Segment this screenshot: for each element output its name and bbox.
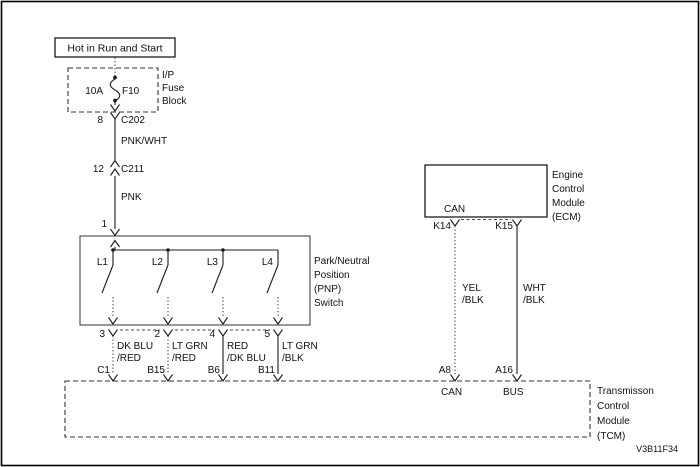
tcm-pin-b6-label: B6 xyxy=(208,365,221,376)
switch-L3: L3 xyxy=(207,250,228,324)
diagram-code: V3B11F34 xyxy=(636,444,678,454)
ecm-pin-k15-label: K15 xyxy=(495,221,513,232)
power-feed: Hot in Run and Start 10A F10 I/P Fuse Bl… xyxy=(55,38,187,236)
pnp-label-2: Position xyxy=(314,270,350,281)
tcm-label-3: Module xyxy=(597,416,630,427)
fuse-top-junction xyxy=(113,76,117,80)
tcm: CAN BUS Transmisson Control Module (TCM) xyxy=(65,381,654,442)
down-arrow-icon xyxy=(164,318,173,325)
connector-c202-icon xyxy=(111,113,120,120)
wire-1-color-2: /RED xyxy=(117,353,141,364)
tcm-pin-a16-label: A16 xyxy=(495,365,513,376)
wire-3-color-1: RED xyxy=(227,341,248,352)
pnp-out-pin-3-label: 3 xyxy=(99,329,105,340)
wire-yel-blk-color-2: /BLK xyxy=(462,295,484,306)
down-arrow-icon xyxy=(111,105,120,112)
down-arrow-icon xyxy=(109,318,118,325)
ecm-pin-connector-icon xyxy=(513,220,522,227)
pnp-out-connector-icon xyxy=(274,330,283,337)
wire-1-color-1: DK BLU xyxy=(117,341,153,352)
switch-blade xyxy=(157,265,168,293)
ecm-label-4: (ECM) xyxy=(552,212,581,223)
switch-L1: L1 xyxy=(97,250,118,324)
pnp-out-pin-4-label: 4 xyxy=(209,329,215,340)
fuse-symbol xyxy=(110,79,120,101)
switch-blade xyxy=(102,265,113,293)
pin-12-label: 12 xyxy=(93,164,105,175)
c211-label: C211 xyxy=(121,164,145,175)
tcm-pin-b15-label: B15 xyxy=(147,365,165,376)
pnp-label-4: Switch xyxy=(314,298,343,309)
fuse-block-label-3: Block xyxy=(162,96,187,107)
pnp-label-1: Park/Neutral xyxy=(314,256,370,267)
fuse-block-box xyxy=(68,68,158,112)
down-arrow-icon xyxy=(274,318,283,325)
wiring-diagram: Hot in Run and Start 10A F10 I/P Fuse Bl… xyxy=(0,0,700,467)
pin-1-label: 1 xyxy=(101,219,107,230)
wire-2-color-1: LT GRN xyxy=(172,341,208,352)
fuse-id-label: F10 xyxy=(122,86,140,97)
switch-L4: L4 xyxy=(262,250,283,324)
tcm-label-2: Control xyxy=(597,401,629,412)
connector-c211-icon xyxy=(111,161,120,168)
ecm-label-3: Module xyxy=(552,198,585,209)
switch-blade xyxy=(212,265,223,293)
ecm-pin-k14-label: K14 xyxy=(433,221,451,232)
wire-pnk-wht-label: PNK/WHT xyxy=(121,136,167,147)
tcm-pin-connector-icon xyxy=(513,375,522,382)
pnp-out-connector-icon xyxy=(219,330,228,337)
up-arrow-icon xyxy=(111,241,120,248)
tcm-pin-b11-label: B11 xyxy=(258,365,275,376)
connector-c211-icon xyxy=(111,169,120,176)
pin-1-connector-icon xyxy=(111,229,120,236)
tcm-bus-label: BUS xyxy=(503,387,524,398)
tcm-pin-connector-icon xyxy=(451,375,460,382)
diagram-frame xyxy=(2,2,699,466)
switch-blade xyxy=(267,265,278,293)
wire-4-color-1: LT GRN xyxy=(282,341,318,352)
pnp-switch: L1 L2 L3 L4 Par xyxy=(80,236,370,325)
c202-label: C202 xyxy=(121,115,145,126)
wire-wht-blk-color-2: /BLK xyxy=(523,295,545,306)
tcm-pin-a8-label: A8 xyxy=(439,365,452,376)
tcm-can-label: CAN xyxy=(441,387,462,398)
tcm-label-1: Transmisson xyxy=(597,386,654,397)
switch-L3-label: L3 xyxy=(207,257,219,268)
fuse-block-label-2: Fuse xyxy=(162,83,185,94)
ecm-label-1: Engine xyxy=(552,170,584,181)
pnp-out-connector-icon xyxy=(164,330,173,337)
switch-L2-label: L2 xyxy=(152,257,164,268)
ecm-pin-connector-icon xyxy=(451,220,460,227)
switch-L4-label: L4 xyxy=(262,257,274,268)
ecm-label-2: Control xyxy=(552,184,584,195)
wire-wht-blk-color-1: WHT xyxy=(523,283,546,294)
wiring-diagram-page: Hot in Run and Start 10A F10 I/P Fuse Bl… xyxy=(0,0,700,467)
fuse-block-label-1: I/P xyxy=(162,70,175,81)
ecm: CAN Engine Control Module (ECM) K14 K15 … xyxy=(425,165,585,381)
power-source-label: Hot in Run and Start xyxy=(67,43,162,55)
pnp-label-3: (PNP) xyxy=(314,284,341,295)
tcm-label-4: (TCM) xyxy=(597,431,625,442)
switch-L2: L2 xyxy=(152,250,173,324)
pin-8-label: 8 xyxy=(97,115,103,126)
wire-pnk-label: PNK xyxy=(121,192,142,203)
fuse-amp-label: 10A xyxy=(85,86,103,97)
pnp-out-pin-2-label: 2 xyxy=(154,329,160,340)
pnp-output-wires: 3 2 4 5 DK BLU /RED LT GRN /RED RED /DK … xyxy=(97,329,318,381)
switch-L1-label: L1 xyxy=(97,257,109,268)
wire-yel-blk-color-1: YEL xyxy=(462,283,481,294)
wire-3-color-2: /DK BLU xyxy=(227,353,266,364)
pnp-out-connector-icon xyxy=(109,330,118,337)
wire-4-color-2: /BLK xyxy=(282,353,304,364)
down-arrow-icon xyxy=(219,318,228,325)
tcm-pin-c1-label: C1 xyxy=(97,365,110,376)
ecm-can-label: CAN xyxy=(444,204,465,215)
wire-2-color-2: /RED xyxy=(172,353,196,364)
pnp-out-pin-5-label: 5 xyxy=(264,329,270,340)
